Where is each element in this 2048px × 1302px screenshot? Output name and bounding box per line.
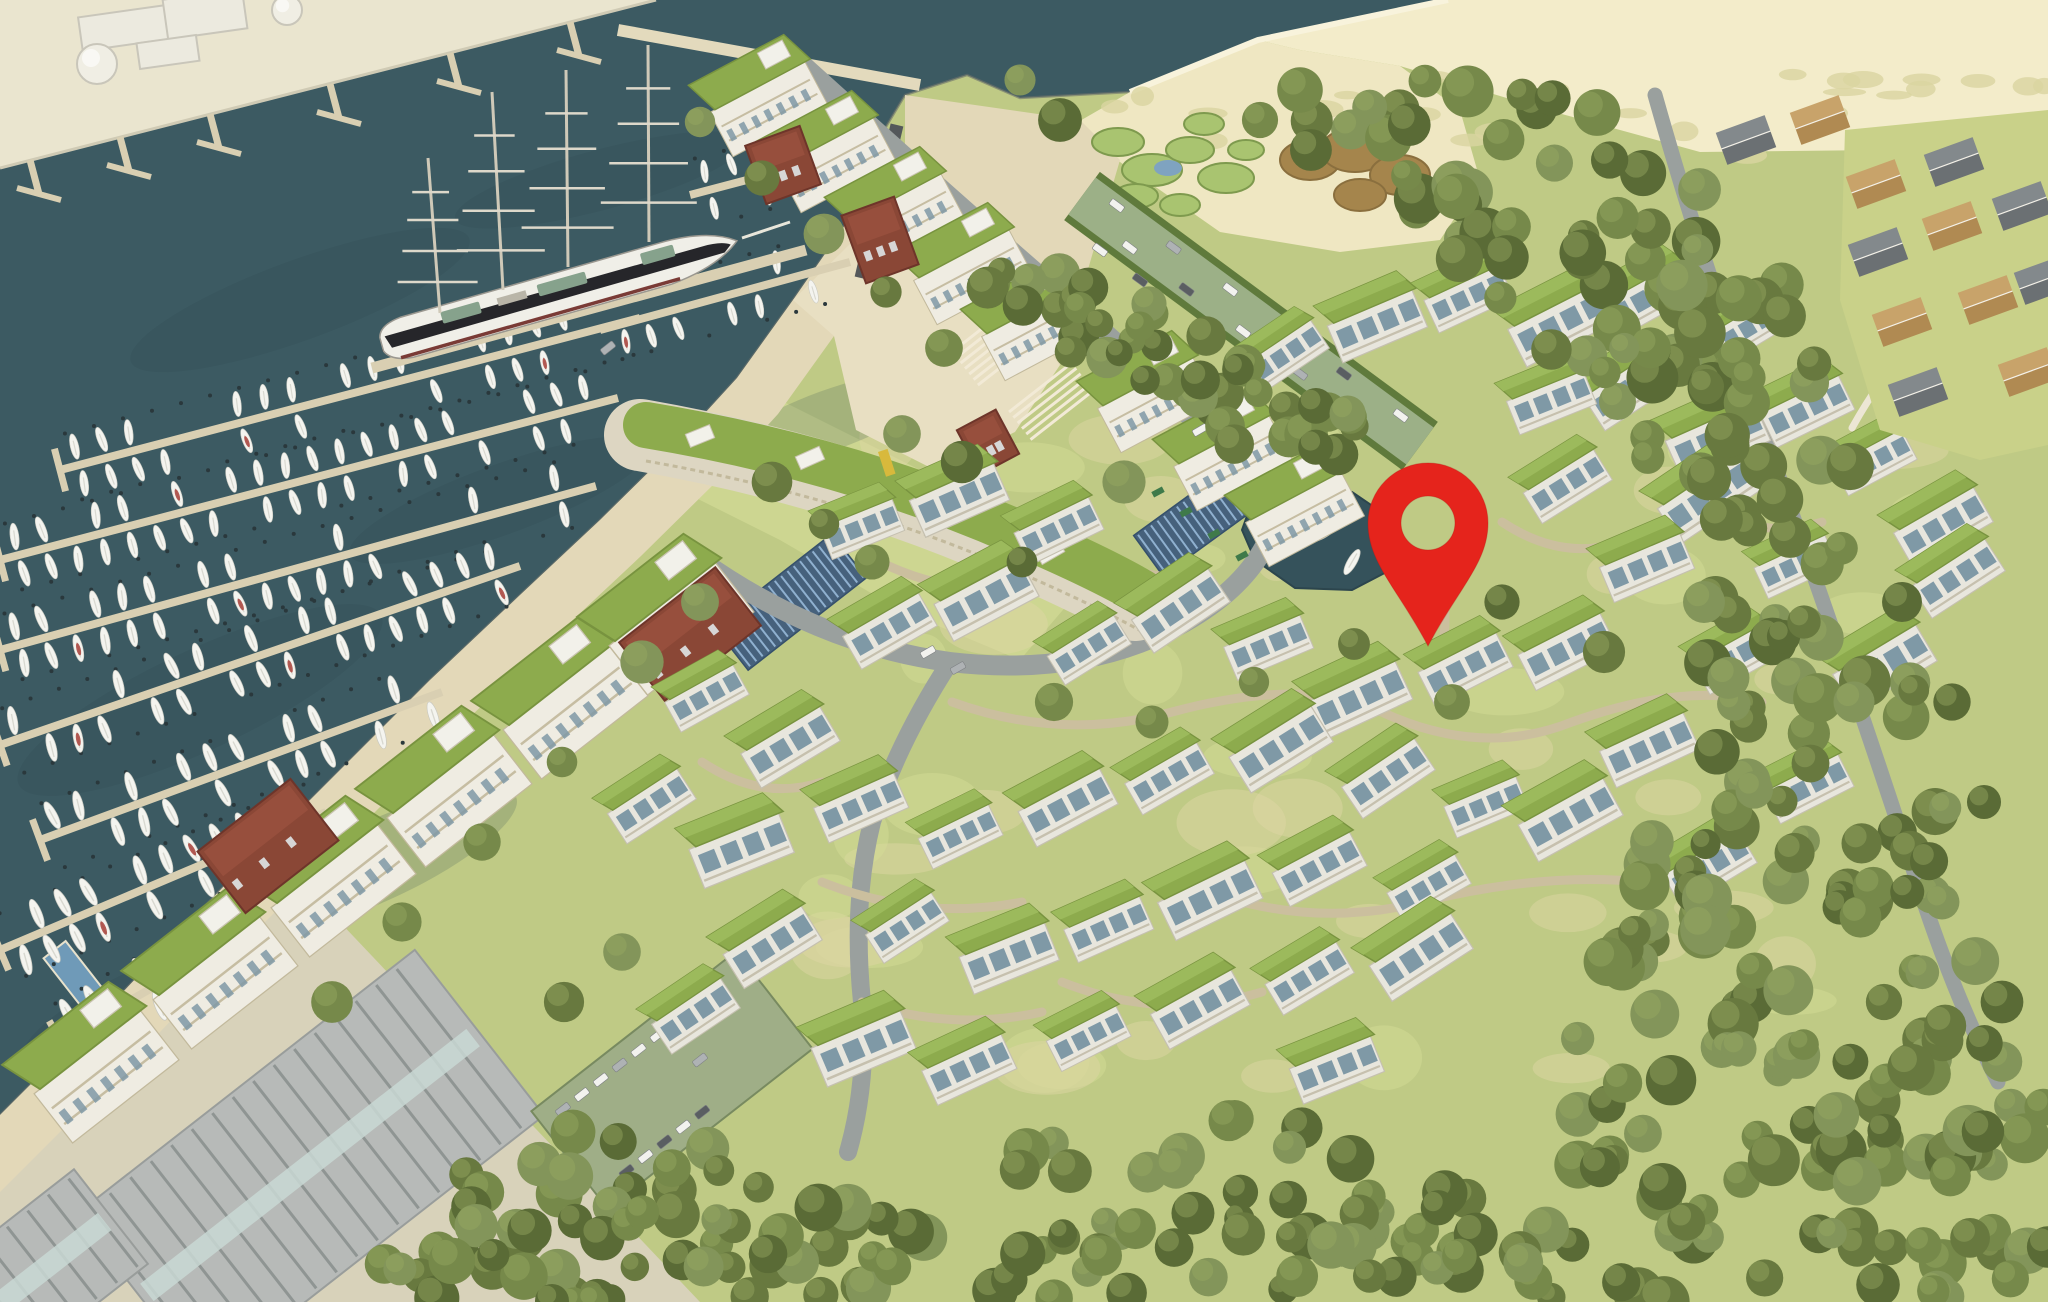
- resort-aerial-rendering: [0, 0, 2048, 1302]
- site-plan-map: [0, 0, 2048, 1302]
